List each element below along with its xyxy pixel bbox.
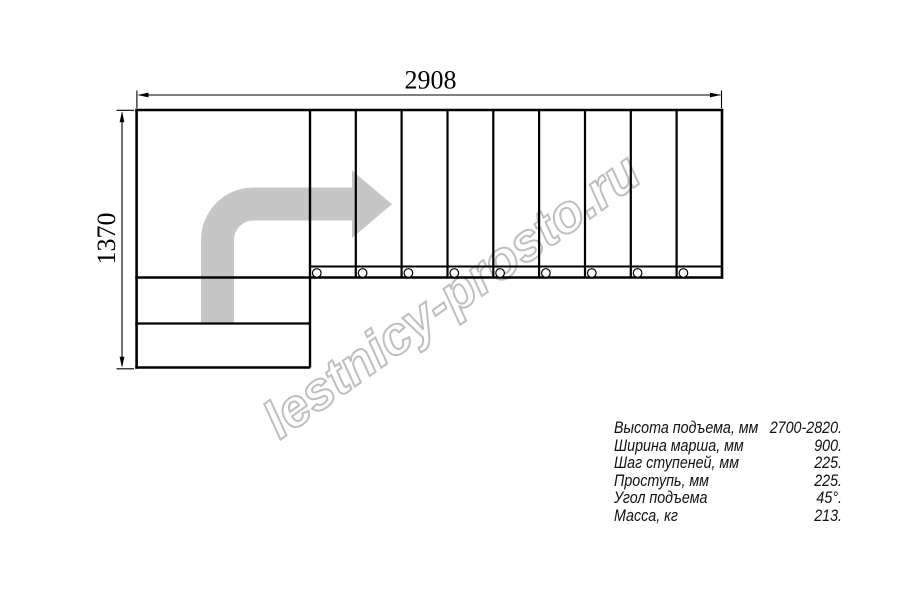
svg-text:1370: 1370 [92,213,121,265]
svg-text:2908: 2908 [405,66,457,95]
